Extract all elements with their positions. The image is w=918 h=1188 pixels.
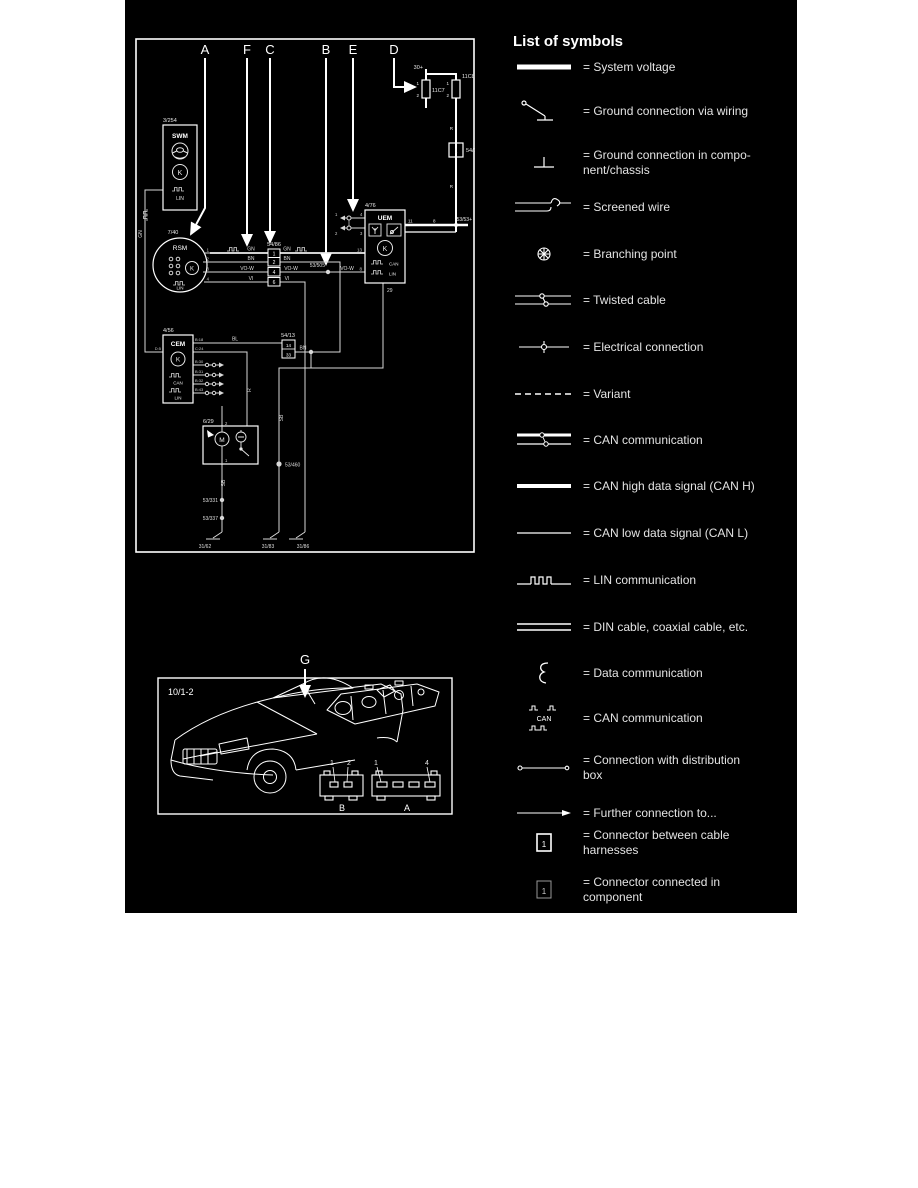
swm-name: SWM (172, 133, 188, 140)
legend-label: = Connection with distributionbox (583, 753, 740, 783)
legend-title: List of symbols (513, 33, 623, 50)
splice-460-label: 53/460 (285, 463, 301, 469)
service-manual-page: A F C B E D 30+ 11C7 (0, 0, 918, 1188)
can-high-symbol (513, 471, 575, 501)
legend-label: = DIN cable, coaxial cable, etc. (583, 620, 748, 635)
electrical-connection-symbol (513, 332, 575, 362)
din-cable-symbol (513, 612, 575, 642)
ground-31-83: 31/83 (262, 544, 275, 550)
connector-a-pin1: 1 (374, 760, 378, 767)
connector-b-pin1: 1 (330, 760, 334, 767)
swm-key-icon: K (173, 165, 188, 180)
svg-text:4: 4 (273, 270, 276, 276)
can-communication-symbol (513, 425, 575, 455)
fuse-11c7 (422, 80, 430, 98)
module-rsm: 7/40 RSM K LIN 1 2 3 4 (153, 230, 210, 292)
fuse-11c7-label: 11C7 (432, 88, 445, 94)
legend-label: = Ground connection via wiring (583, 104, 748, 119)
connector-b-label: B (339, 803, 345, 813)
svg-text:B:31: B:31 (195, 369, 204, 374)
conn-54-86-pins: 1 2 4 6 (273, 252, 276, 287)
legend-label: = Variant (583, 387, 630, 402)
svg-text:6: 6 (273, 280, 276, 286)
distribution-box-symbol (513, 753, 575, 783)
motor-m-label: M (219, 437, 224, 444)
wire-r2: R (450, 184, 454, 189)
svg-text:3: 3 (207, 267, 210, 272)
junction-label: 53/53+ (457, 217, 473, 223)
legend-label: = Ground connection in compo-nent/chassi… (583, 148, 751, 178)
connector-digit: 1 (542, 840, 547, 849)
antenna-icon (369, 224, 381, 236)
legend-item-distribution-box: = Connection with distributionbox (513, 753, 797, 783)
figure-border (158, 678, 452, 814)
location-figure: G 10/1-2 (155, 648, 455, 818)
legend-item-branching-point: = Branching point (513, 239, 797, 269)
cem-can-label: CAN (173, 381, 183, 386)
screened-wire-symbol (513, 192, 575, 222)
svg-text:B:18: B:18 (195, 337, 204, 342)
swm-ref: 3/254 (163, 118, 177, 124)
connector-a-pin4: 4 (425, 760, 429, 767)
legend-label: = CAN communication (583, 711, 703, 726)
power-labels: 30+ 11C7 11C8 1 2 1 2 1 54/13 53/53+ R R… (408, 65, 475, 224)
can-communication-2-symbol: CAN (513, 701, 575, 735)
legend-label: = LIN communication (583, 573, 696, 588)
twisted-cable-symbol (513, 285, 575, 315)
ground-symbols (206, 532, 305, 539)
legend-item-lin-communication: = LIN communication (513, 565, 797, 595)
wire-bn1: BN (248, 256, 255, 262)
wire-vi2: VI (285, 276, 290, 282)
svg-text:D:5: D:5 (155, 346, 162, 351)
conn-54-86-label: 54/86 (267, 242, 281, 248)
svg-text:2: 2 (207, 257, 210, 262)
legend-label: = Data communication (583, 666, 703, 681)
uem-pin8r: 8 (433, 219, 436, 224)
motor-ref: 6/29 (203, 419, 214, 425)
legend-item-can-communication-2: CAN = CAN communication (513, 703, 797, 733)
connector-b: 1 2 B (320, 760, 363, 813)
lin-communication-symbol (513, 565, 575, 595)
fuse1-pin2: 2 (416, 93, 419, 98)
callout-g: G (300, 652, 310, 667)
svg-text:B:43: B:43 (195, 387, 204, 392)
svg-text:K: K (176, 357, 181, 364)
uem-pin29: 29 (387, 288, 393, 294)
ground-component-symbol (513, 148, 575, 178)
fuse-11c8-label: 11C8 (462, 74, 475, 80)
uem-ref: 4/76 (365, 203, 376, 209)
can-low-symbol (513, 518, 575, 548)
connector-54-13-lower: 54/13 14 33 (281, 333, 295, 358)
legend-item-twisted-cable: = Twisted cable (513, 285, 797, 315)
steering-wheel-icon (172, 143, 188, 159)
legend-item-can-low: = CAN low data signal (CAN L) (513, 518, 797, 548)
fuse2-pin1: 1 (446, 81, 449, 86)
legend-label: = Electrical connection (583, 340, 703, 355)
rsm-name: RSM (173, 245, 187, 252)
wire-r1: R (450, 126, 454, 131)
svg-text:3: 3 (360, 231, 363, 236)
cem-ref: 4/56 (163, 328, 174, 334)
wire-sb2: SB (279, 414, 285, 421)
wiring-diagram-panel: A F C B E D 30+ 11C7 (125, 0, 797, 913)
legend-label: = CAN low data signal (CAN L) (583, 526, 748, 541)
conn-54-13-label: 54/13 (466, 148, 475, 154)
fuse2-pin2: 2 (446, 93, 449, 98)
svg-text:1: 1 (335, 212, 338, 217)
svg-text:K: K (178, 170, 183, 177)
splice-505-label: 53/505 (310, 263, 326, 269)
connector-b-pin2: 2 (347, 760, 351, 767)
power-junction-dot (454, 223, 458, 227)
wire-vow3: VO-W (340, 266, 354, 272)
car-illustration (171, 678, 403, 793)
uem-lin-label: LIN (389, 272, 396, 277)
svg-text:1: 1 (273, 252, 276, 258)
legend-label: = Screened wire (583, 200, 670, 215)
light-sensor-icon (387, 224, 401, 236)
wiring-diagram: A F C B E D 30+ 11C7 (135, 38, 475, 553)
legend-item-connector-component: 1 = Connector connected incomponent (513, 875, 797, 905)
connector-digit: 1 (542, 887, 547, 896)
splice-337-label: 53/337 (203, 516, 219, 522)
legend-label: = CAN communication (583, 433, 703, 448)
branching-point-symbol (513, 239, 575, 269)
callout-f: F (243, 42, 251, 57)
fuse-11c8 (452, 80, 460, 98)
ground-wiring-symbol (513, 95, 575, 127)
component-motor: 6/29 M 2 1 (203, 419, 258, 464)
conn-54-13b-pin14: 14 (286, 343, 292, 348)
ground-31-62: 31/62 (199, 544, 212, 550)
pump-icon (236, 430, 249, 456)
fuse1-pin1: 1 (416, 81, 419, 86)
wire-vow2: VO-W (284, 266, 298, 272)
connector-harnesses-symbol: 1 (513, 828, 575, 858)
legend-item-ground-wiring: = Ground connection via wiring (513, 96, 797, 126)
connector-a: 1 4 A (372, 760, 440, 813)
conn-54-13b-pin33: 33 (286, 353, 292, 358)
callout-b: B (322, 42, 331, 57)
uem-key-icon: K (378, 241, 393, 256)
wire-vi1: VI (249, 276, 254, 282)
legend-label: = Branching point (583, 247, 677, 262)
wire-r3: R (247, 388, 253, 392)
rsm-key-icon: K (186, 262, 199, 275)
uem-pin11: 11 (408, 219, 413, 224)
legend-item-screened-wire: = Screened wire (513, 192, 797, 222)
can-symbol-text: CAN (537, 716, 552, 723)
swm-lin-label: LIN (176, 196, 184, 202)
callout-c: C (265, 42, 274, 57)
cem-key-icon: K (171, 352, 185, 366)
conn-54-13-pin: 1 (455, 149, 458, 155)
wire-gn2: GN (283, 247, 291, 253)
terminal-30-label: 30+ (414, 65, 423, 71)
connector-component-symbol: 1 (513, 875, 575, 905)
callout-e: E (349, 42, 358, 57)
svg-text:B:30: B:30 (195, 359, 204, 364)
connector-54-86: 54/86 1 2 4 6 (267, 242, 281, 286)
motor-pin1: 1 (225, 458, 228, 463)
legend-item-can-communication: = CAN communication (513, 425, 797, 455)
callout-a: A (201, 42, 210, 57)
legend-label: = Twisted cable (583, 293, 666, 308)
wire-gnv: GN (138, 230, 144, 238)
symbol-legend: List of symbols = System voltage = Groun… (513, 0, 797, 913)
legend-item-ground-component: = Ground connection in compo-nent/chassi… (513, 148, 797, 178)
svg-text:1: 1 (207, 248, 210, 253)
legend-label: = Connector connected incomponent (583, 875, 720, 905)
module-swm: 3/254 SWM K LIN (163, 118, 197, 210)
further-connection-symbol (513, 798, 575, 828)
data-communication-symbol (513, 658, 575, 688)
rsm-lin-label: LIN (176, 286, 183, 291)
rsm-ref: 7/40 (168, 230, 179, 236)
legend-label: = Connector between cableharnesses (583, 828, 729, 858)
wire-bn2: BN (284, 256, 291, 262)
svg-text:K: K (383, 246, 388, 253)
uem-pin13: 13 (357, 248, 363, 253)
legend-item-connector-harnesses: 1 = Connector between cableharnesses (513, 828, 797, 858)
svg-text:B:32: B:32 (195, 378, 204, 383)
legend-item-data-communication: = Data communication (513, 658, 797, 688)
uem-name: UEM (378, 215, 392, 222)
ground-31-86: 31/86 (297, 544, 310, 550)
cem-name: CEM (171, 341, 185, 348)
callout-letters: A F C B E D (201, 42, 399, 57)
callout-d: D (389, 42, 398, 57)
variant-symbol (513, 379, 575, 409)
signal-wires (145, 190, 383, 532)
legend-item-system-voltage: = System voltage (513, 52, 797, 82)
svg-text:2: 2 (273, 260, 276, 266)
uem-pin8l: 8 (359, 267, 362, 272)
wire-sb1: SB (221, 479, 227, 486)
motor-arrow (207, 430, 214, 438)
figure-ref: 10/1-2 (168, 687, 194, 697)
legend-label: = System voltage (583, 60, 675, 75)
uem-can-label: CAN (389, 262, 399, 267)
connector-a-label: A (404, 803, 410, 813)
legend-item-further-connection: = Further connection to... (513, 798, 797, 828)
legend-label: = Further connection to... (583, 806, 717, 821)
legend-label: = CAN high data signal (CAN H) (583, 479, 755, 494)
system-voltage-symbol (513, 52, 575, 82)
rsm-lamp-dots (169, 257, 180, 275)
svg-text:4: 4 (360, 212, 363, 217)
motor-pin2: 2 (225, 421, 228, 426)
legend-item-can-high: = CAN high data signal (CAN H) (513, 471, 797, 501)
wire-bn3: BN (300, 346, 307, 352)
svg-text:C:24: C:24 (195, 346, 204, 351)
conn-54-13b-label: 54/13 (281, 333, 295, 339)
svg-text:2: 2 (335, 231, 338, 236)
wire-vow1: VO-W (240, 266, 254, 272)
svg-text:K: K (190, 267, 194, 273)
legend-item-electrical-connection: = Electrical connection (513, 332, 797, 362)
splices (220, 270, 330, 520)
svg-text:4: 4 (207, 277, 210, 282)
wire-bl: BL (232, 337, 238, 343)
cem-lin-label: LIN (174, 396, 181, 401)
legend-item-variant: = Variant (513, 379, 797, 409)
splice-331-label: 53/331 (203, 498, 219, 504)
legend-item-din-cable: = DIN cable, coaxial cable, etc. (513, 612, 797, 642)
wire-gn1: GN (247, 247, 255, 253)
